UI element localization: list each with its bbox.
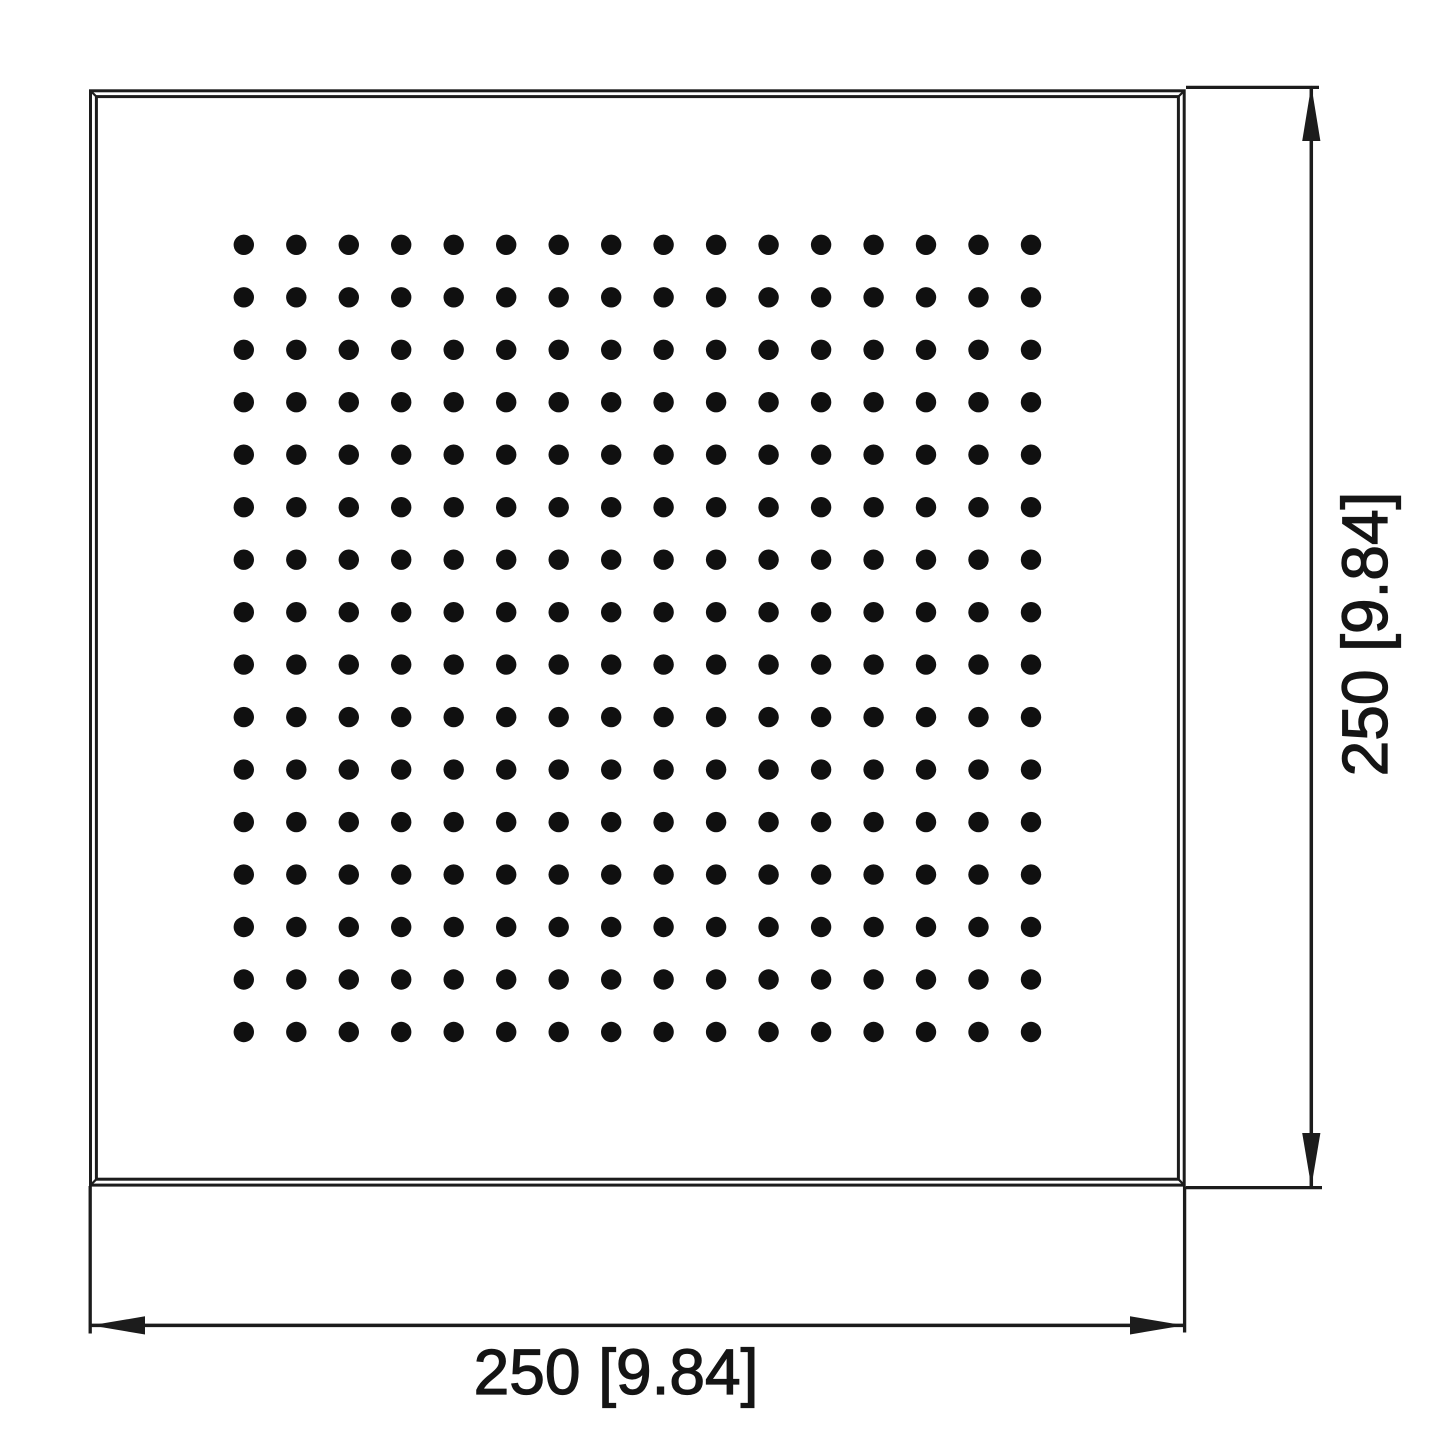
svg-text:250 [9.84]: 250 [9.84]	[474, 1336, 759, 1408]
svg-text:250 [9.84]: 250 [9.84]	[1329, 492, 1401, 777]
